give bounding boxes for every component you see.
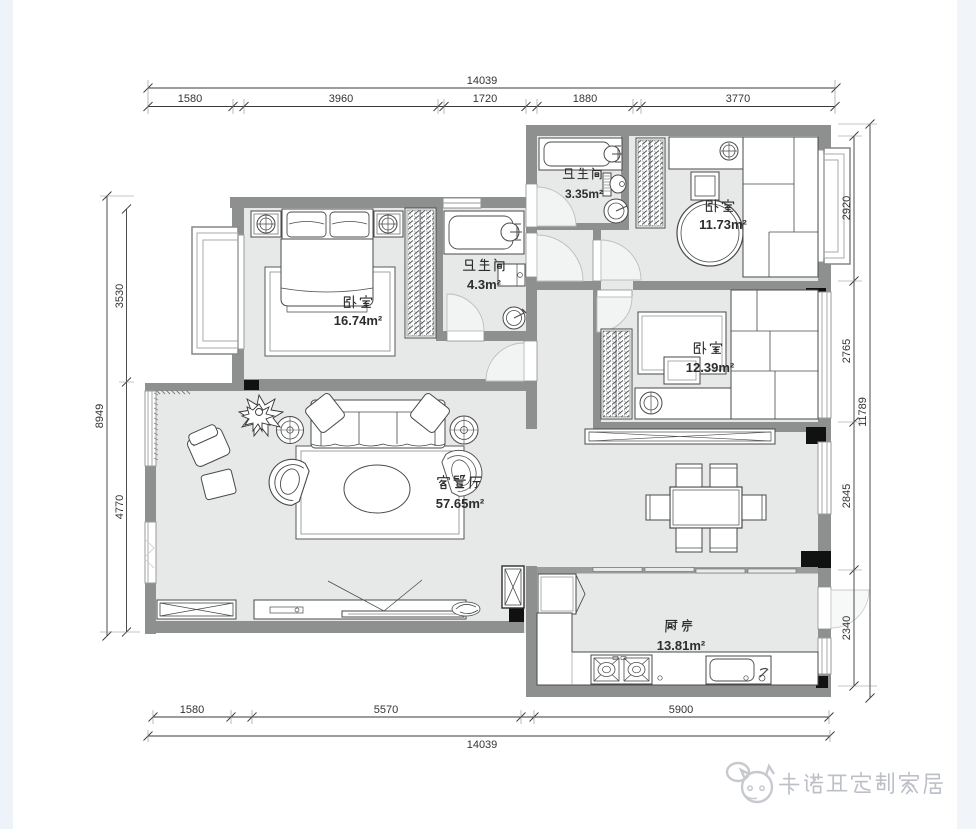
svg-text:1880: 1880 xyxy=(573,93,597,105)
svg-text:14039: 14039 xyxy=(467,75,498,87)
svg-text:2845: 2845 xyxy=(841,484,853,508)
svg-text:2340: 2340 xyxy=(841,616,853,640)
svg-text:4.3m²: 4.3m² xyxy=(467,277,502,292)
svg-text:2765: 2765 xyxy=(841,339,853,363)
svg-text:1580: 1580 xyxy=(178,93,202,105)
svg-text:2920: 2920 xyxy=(841,196,853,220)
svg-text:3.35m²: 3.35m² xyxy=(565,187,603,201)
svg-text:4770: 4770 xyxy=(114,495,126,519)
svg-text:8949: 8949 xyxy=(94,404,106,428)
svg-text:5570: 5570 xyxy=(374,704,398,716)
svg-text:14039: 14039 xyxy=(467,739,498,751)
svg-text:13.81m²: 13.81m² xyxy=(657,638,706,653)
svg-text:11789: 11789 xyxy=(857,397,869,427)
svg-text:3770: 3770 xyxy=(726,93,750,105)
svg-text:12.39m²: 12.39m² xyxy=(686,360,735,375)
svg-text:3960: 3960 xyxy=(329,93,353,105)
svg-text:11.73m²: 11.73m² xyxy=(699,217,747,232)
svg-text:1720: 1720 xyxy=(473,93,497,105)
svg-text:1580: 1580 xyxy=(180,704,204,716)
svg-text:57.65m²: 57.65m² xyxy=(436,496,485,511)
svg-text:5900: 5900 xyxy=(669,704,693,716)
svg-text:16.74m²: 16.74m² xyxy=(334,313,383,328)
svg-text:3530: 3530 xyxy=(114,284,126,308)
